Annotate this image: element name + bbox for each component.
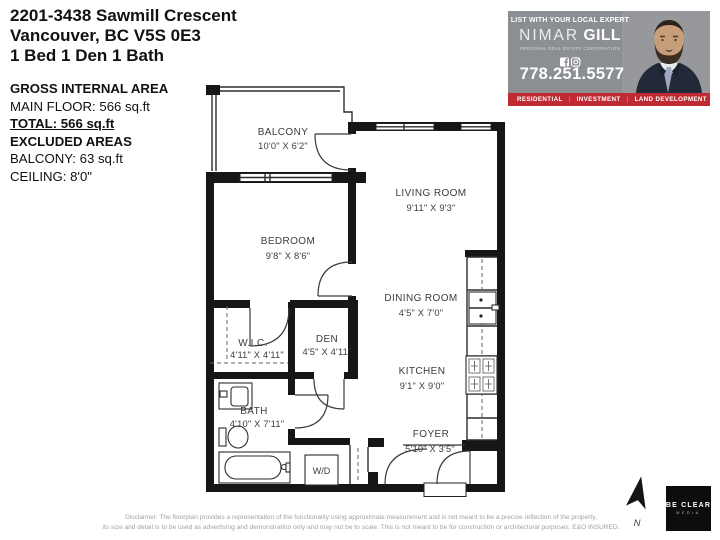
fridge-icon xyxy=(469,292,499,324)
floorplan-flyer: 2201-3438 Sawmill Crescent Vancouver, BC… xyxy=(0,0,720,540)
bath-door xyxy=(295,395,328,428)
room-dims-balcony: 10'0" X 6'2" xyxy=(258,141,308,151)
entry-threshold xyxy=(424,483,466,497)
stove-icon xyxy=(466,356,497,394)
beclear-logo-text: BE CLEAR xyxy=(666,502,711,509)
kitchen-counter xyxy=(466,257,499,440)
toilet-icon xyxy=(219,426,248,448)
room-label-living: LIVING ROOM xyxy=(395,188,466,199)
beclear-logo: BE CLEAR MEDIA xyxy=(666,486,711,531)
floor-plan: W/D BALCONY 10'0" X 6'2" LIVING ROOM 9'1… xyxy=(0,0,720,540)
room-dims-wic: 4'11" X 4'11" xyxy=(230,350,284,360)
bathroom-fixtures xyxy=(219,383,290,483)
room-label-dining: DINING ROOM xyxy=(384,293,457,304)
room-dims-dining: 4'5" X 7'0" xyxy=(399,308,443,318)
room-label-den: DEN xyxy=(316,334,338,345)
disclaimer: Disclaimer: The floorplan provides a rep… xyxy=(55,513,667,532)
room-label-kitchen: KITCHEN xyxy=(399,366,446,377)
balcony-door xyxy=(315,134,351,170)
room-label-bath: BATH xyxy=(240,406,268,417)
beclear-logo-subtext: MEDIA xyxy=(676,511,701,515)
washer-dryer-label: W/D xyxy=(313,466,331,476)
room-dims-kitchen: 9'1" X 9'0" xyxy=(400,381,444,391)
foyer-closet-door xyxy=(437,451,470,484)
washer-dryer: W/D xyxy=(305,455,338,485)
room-dims-foyer: 5'10" X 3'5" xyxy=(405,444,455,454)
room-dims-bath: 4'10" X 7'11" xyxy=(230,419,284,429)
bathtub-icon xyxy=(219,452,290,483)
room-label-balcony: BALCONY xyxy=(258,127,309,138)
disclaimer-line1: Disclaimer: The floorplan provides a rep… xyxy=(55,513,667,523)
walls xyxy=(206,85,505,492)
bedroom-door xyxy=(318,262,352,296)
room-label-wic: W.I.C. xyxy=(238,338,268,349)
room-label-bedroom: BEDROOM xyxy=(261,236,315,247)
disclaimer-line2: its size and detail is to be used as adv… xyxy=(55,523,667,533)
room-dims-den: 4'5" X 4'11" xyxy=(302,347,351,357)
room-label-foyer: FOYER xyxy=(413,429,449,440)
north-arrow-icon xyxy=(620,474,654,512)
den-door xyxy=(314,379,344,409)
room-dims-bedroom: 9'8" X 8'6" xyxy=(266,251,310,261)
room-dims-living: 9'11" X 9'3" xyxy=(406,203,455,213)
